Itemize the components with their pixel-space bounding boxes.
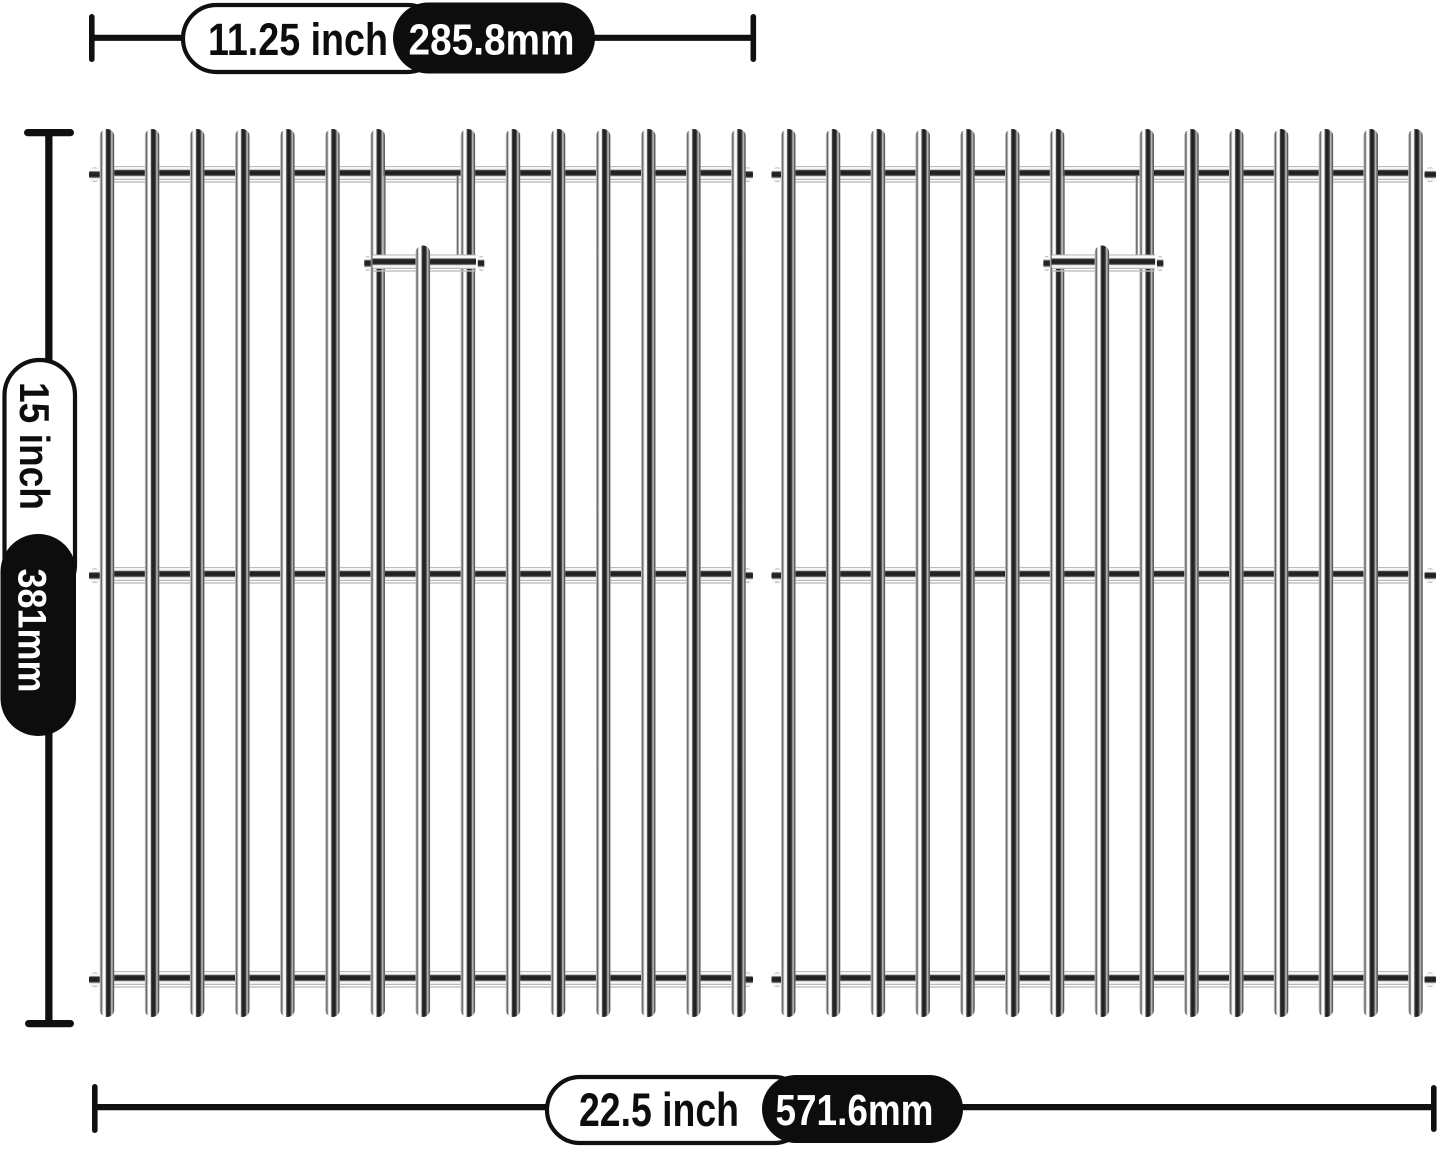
svg-text:15 inch: 15 inch — [11, 382, 58, 510]
svg-text:381mm: 381mm — [10, 569, 54, 693]
svg-text:22.5 inch: 22.5 inch — [579, 1083, 739, 1136]
svg-text:285.8mm: 285.8mm — [409, 16, 575, 65]
svg-text:11.25 inch: 11.25 inch — [208, 14, 388, 65]
svg-text:571.6mm: 571.6mm — [776, 1086, 934, 1135]
